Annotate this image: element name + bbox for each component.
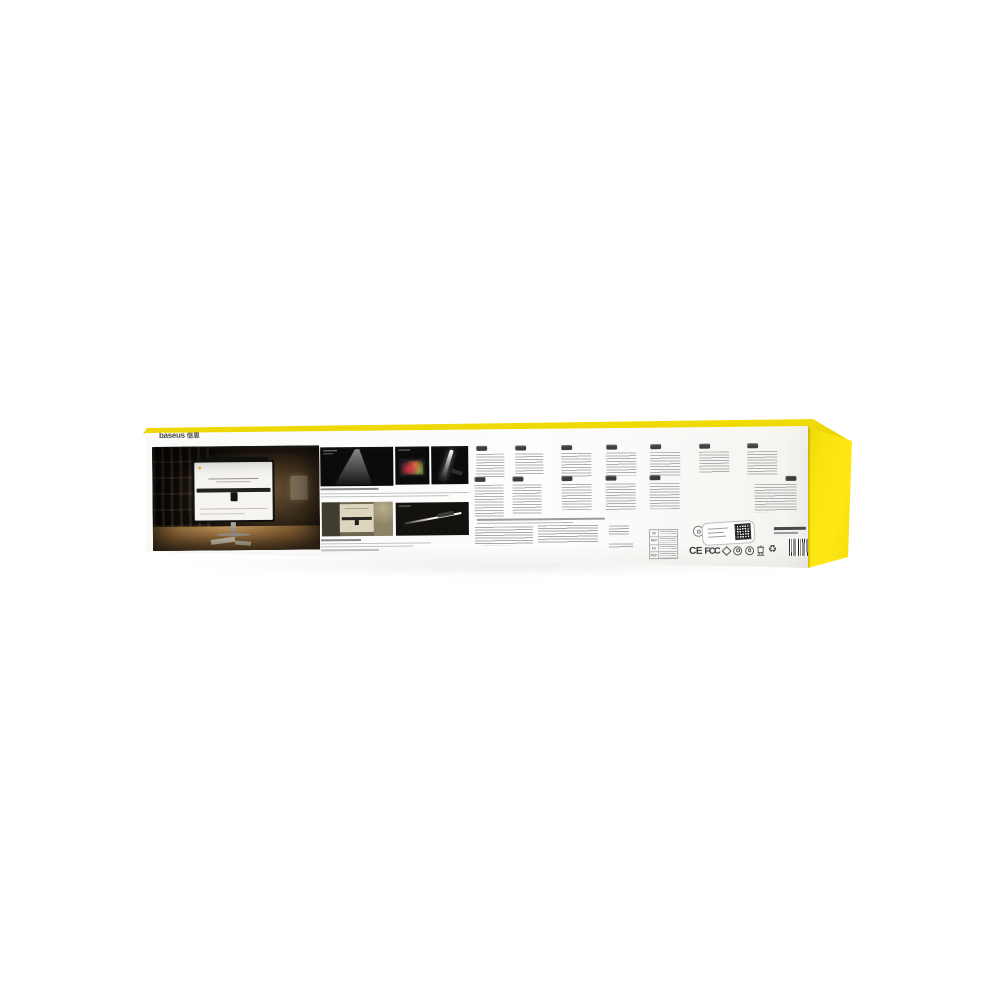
rep-region-code: EU <box>650 545 659 551</box>
webcam-silhouette <box>355 520 359 525</box>
gallery-photo-product-beam <box>431 446 468 484</box>
colorful-picture <box>401 460 423 474</box>
language-text-lines <box>512 484 541 514</box>
rep-address-lines <box>660 553 676 558</box>
caption-text-line <box>321 546 413 548</box>
language-badge-icon <box>476 446 487 451</box>
fcc-mark: FCC <box>704 546 719 556</box>
sticker-text-line <box>708 528 728 530</box>
language-column <box>605 475 635 511</box>
language-text-lines <box>474 485 503 518</box>
language-text-lines <box>747 451 777 475</box>
language-column <box>650 444 680 476</box>
product-code-bold-line <box>774 527 806 530</box>
language-badge-icon <box>605 476 616 481</box>
language-text-lines <box>605 483 635 511</box>
language-badge-icon <box>561 445 572 450</box>
language-column <box>699 443 729 473</box>
language-column-rtl <box>743 476 796 513</box>
recycle-triangle-icon: ♻ <box>768 545 777 555</box>
language-text-lines <box>476 454 504 478</box>
barcode <box>789 539 810 556</box>
legal-text-block <box>609 543 633 548</box>
hero-photo <box>152 445 320 551</box>
caption-title-line <box>321 539 361 541</box>
language-text-lines <box>561 453 591 477</box>
rep-table-row: REP <box>650 552 677 559</box>
cert-diamond-icon <box>721 546 731 556</box>
brand-logo-cn: 倍思 <box>187 433 200 440</box>
language-text-lines <box>650 452 680 476</box>
green-dot-icon <box>745 546 754 555</box>
disclaimer-line <box>477 521 573 523</box>
language-column <box>649 475 679 509</box>
language-badge-icon <box>474 477 485 482</box>
gallery-photo-product-diagonal <box>396 502 469 536</box>
back-panel-content: baseus倍思 <box>143 418 811 570</box>
language-column <box>561 476 591 510</box>
gallery-photo-screen-colors <box>395 446 429 484</box>
certification-marks-row: CE FCC ♻ <box>689 542 777 559</box>
weee-bin-icon <box>756 544 765 556</box>
language-column <box>515 445 543 475</box>
language-column <box>561 445 591 477</box>
mini-screen <box>399 458 425 476</box>
gallery-photo-beam-cone <box>320 447 393 487</box>
language-column <box>606 444 636 475</box>
gallery-caption-1 <box>321 487 469 499</box>
language-column <box>476 446 504 478</box>
rep-region-code: REP <box>650 538 659 544</box>
language-badge-icon <box>785 476 796 481</box>
rep-region-code: REP <box>650 552 659 558</box>
sticker-text-line <box>708 532 724 534</box>
product-code-sub-line <box>774 532 798 534</box>
photo-caption-line <box>323 450 337 451</box>
photo-caption-line <box>323 453 333 454</box>
gallery-caption-2 <box>321 538 431 552</box>
legal-text-block <box>538 525 598 544</box>
photo-caption-line <box>345 508 369 509</box>
language-text-lines <box>649 483 679 509</box>
language-badge-icon <box>650 444 661 449</box>
photo-vignette <box>152 445 320 551</box>
language-text-lines <box>754 484 796 512</box>
rep-address-lines <box>660 546 676 551</box>
language-text-lines <box>515 453 543 475</box>
sticker-text-line <box>708 536 726 538</box>
language-badge-icon <box>606 445 617 450</box>
room-bright-panel <box>340 504 374 532</box>
disclaimer-line <box>477 518 605 521</box>
language-text-lines <box>561 484 591 510</box>
language-text-lines <box>699 451 729 473</box>
photo-caption-line <box>399 506 411 507</box>
product-photo: baseus倍思 <box>0 0 1000 1000</box>
caption-text-line <box>321 549 379 551</box>
box-front-face: baseus倍思 <box>143 424 810 570</box>
language-badge-icon <box>699 444 710 449</box>
caption-text-line <box>321 495 449 498</box>
rohs-circle-icon <box>733 546 742 555</box>
ce-mark: CE <box>689 545 702 556</box>
room-lamp-panel <box>374 502 393 536</box>
light-beam <box>441 449 454 480</box>
lightbar-body <box>451 469 463 476</box>
language-badge-icon <box>512 476 523 481</box>
photo-caption-line <box>398 450 410 451</box>
language-column <box>512 476 541 514</box>
legal-text-block <box>475 526 533 546</box>
gallery-photo-room-scene <box>322 502 393 537</box>
qr-code <box>735 524 750 539</box>
caption-text-line <box>321 542 431 544</box>
caption-title-line <box>321 488 379 491</box>
rep-region-code: UK <box>650 530 659 536</box>
light-cone <box>334 449 372 485</box>
room-dark-panel <box>322 502 340 536</box>
rep-address-table: UK REP EU REP <box>649 529 678 559</box>
box-side-face <box>806 422 858 572</box>
rep-address-lines <box>660 538 676 543</box>
language-badge-icon <box>515 445 526 450</box>
language-badge-icon <box>561 476 572 481</box>
language-badge-icon <box>747 443 758 448</box>
language-column <box>474 477 503 518</box>
legal-text-block <box>609 525 629 534</box>
language-badge-icon <box>649 475 660 480</box>
rep-address-lines <box>660 531 676 536</box>
language-column <box>747 443 777 475</box>
language-text-lines <box>606 452 636 475</box>
